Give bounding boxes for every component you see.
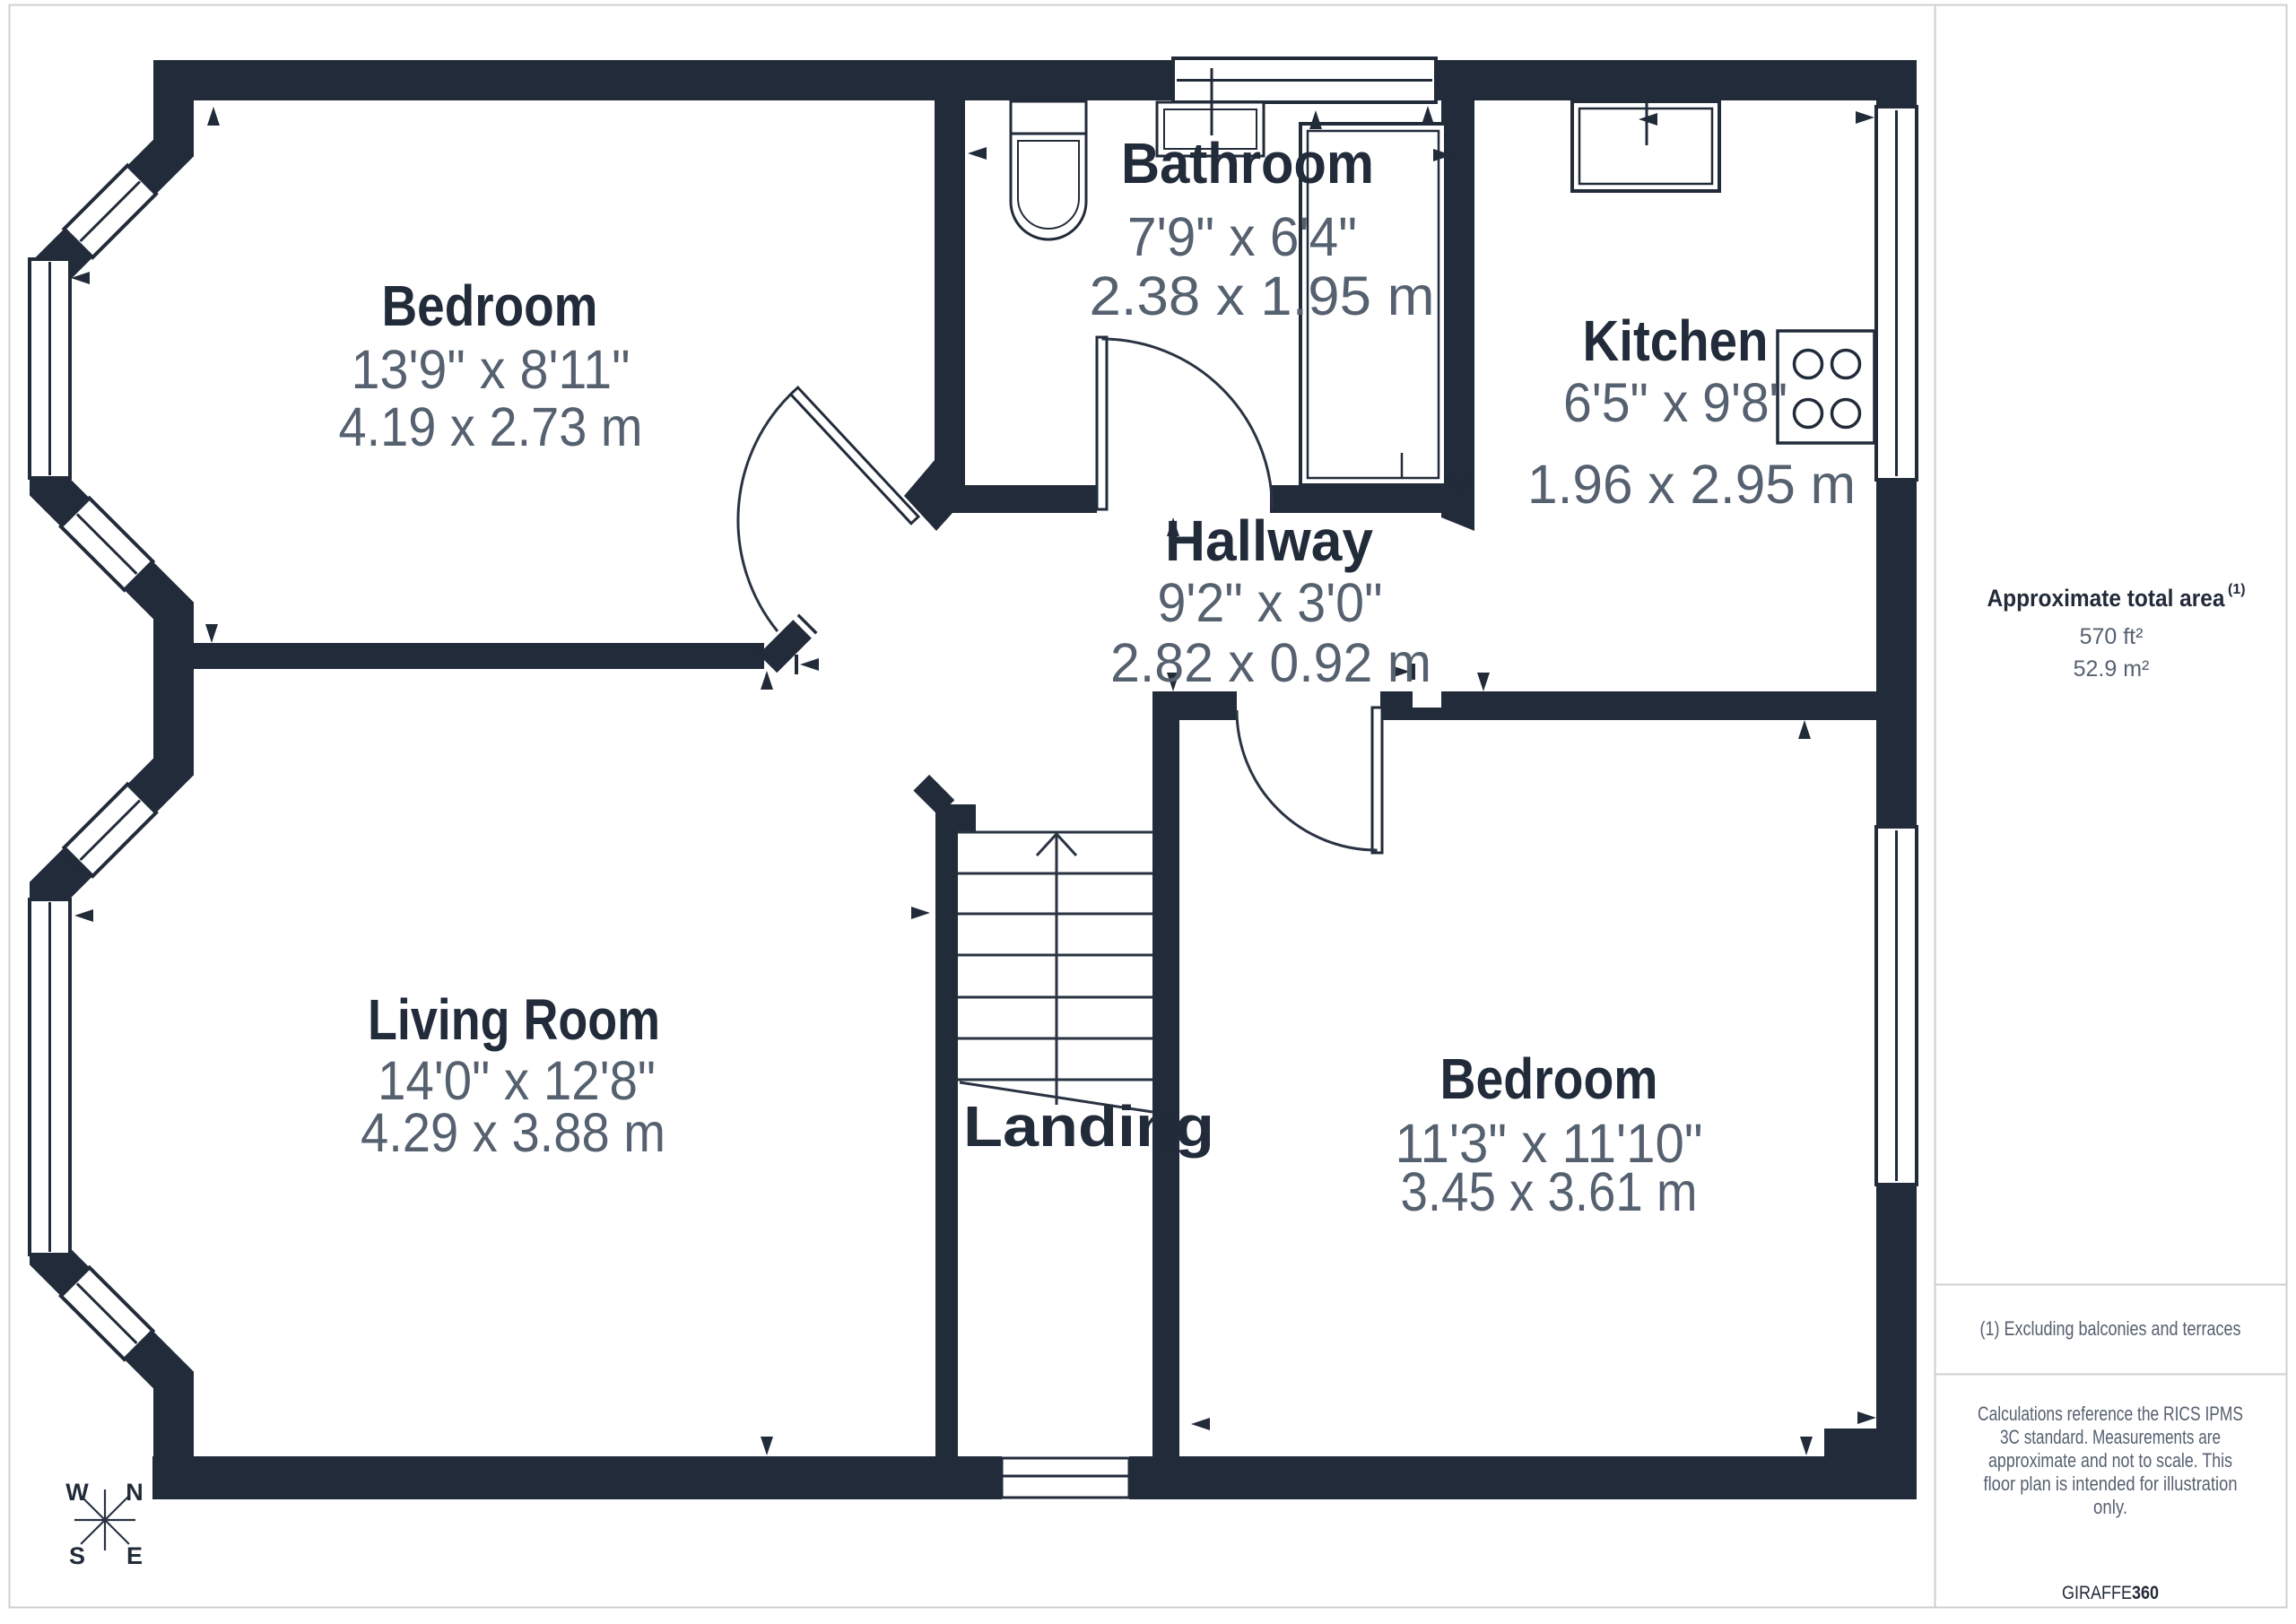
- svg-text:3C standard. Measurements are: 3C standard. Measurements are: [2000, 1426, 2221, 1448]
- svg-text:Bedroom: Bedroom: [1440, 1046, 1658, 1111]
- svg-text:3.45 x 3.61 m: 3.45 x 3.61 m: [1401, 1161, 1698, 1222]
- svg-text:Living Room: Living Room: [368, 987, 660, 1052]
- svg-text:Calculations reference the RIC: Calculations reference the RICS IPMS: [1978, 1403, 2243, 1425]
- svg-text:570 ft²: 570 ft²: [2080, 624, 2144, 649]
- svg-text:E: E: [126, 1542, 143, 1569]
- svg-text:1.96 x 2.95 m: 1.96 x 2.95 m: [1527, 454, 1856, 515]
- svg-text:Bathroom: Bathroom: [1121, 131, 1374, 195]
- svg-text:4.19 x 2.73 m: 4.19 x 2.73 m: [339, 396, 643, 457]
- svg-text:2.38 x 1.95 m: 2.38 x 1.95 m: [1090, 265, 1435, 326]
- svg-text:approximate and not to scale.: approximate and not to scale. This: [1988, 1449, 2232, 1472]
- svg-text:floor plan is intended for ill: floor plan is intended for illustration: [1984, 1472, 2238, 1495]
- svg-text:Approximate total area: Approximate total area: [1987, 585, 2226, 612]
- svg-text:7'9" x 6'4": 7'9" x 6'4": [1127, 206, 1357, 267]
- svg-text:13'9" x 8'11": 13'9" x 8'11": [352, 339, 631, 400]
- svg-text:4.29 x 3.88 m: 4.29 x 3.88 m: [361, 1102, 665, 1163]
- svg-text:GIRAFFE360: GIRAFFE360: [2062, 1583, 2159, 1603]
- svg-text:W: W: [65, 1479, 89, 1506]
- svg-text:only.: only.: [2093, 1496, 2127, 1518]
- svg-text:Bedroom: Bedroom: [382, 274, 598, 338]
- svg-text:(1): (1): [2228, 582, 2246, 597]
- svg-text:(1) Excluding balconies and te: (1) Excluding balconies and terraces: [1980, 1317, 2241, 1340]
- svg-text:6'5" x 9'8": 6'5" x 9'8": [1563, 372, 1787, 433]
- svg-text:52.9 m²: 52.9 m²: [2074, 656, 2150, 682]
- svg-text:Kitchen: Kitchen: [1583, 308, 1769, 373]
- svg-text:S: S: [69, 1542, 85, 1569]
- svg-text:N: N: [126, 1479, 143, 1506]
- svg-text:9'2" x 3'0": 9'2" x 3'0": [1158, 572, 1383, 633]
- svg-text:2.82 x 0.92 m: 2.82 x 0.92 m: [1110, 632, 1431, 693]
- svg-text:Landing: Landing: [963, 1094, 1214, 1159]
- svg-text:Hallway: Hallway: [1165, 508, 1373, 573]
